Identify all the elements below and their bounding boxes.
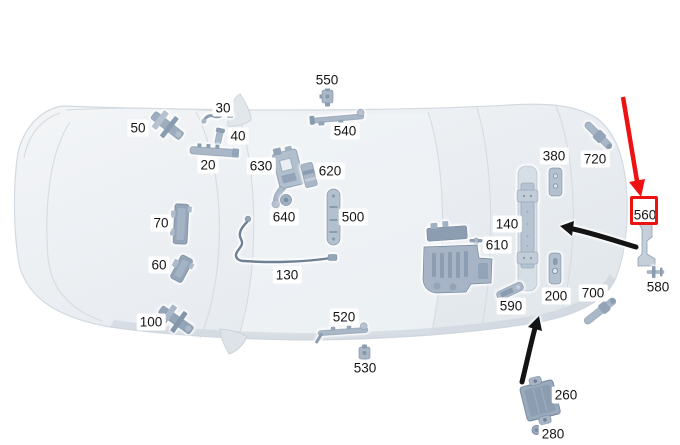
part-label-610[interactable]: 610	[483, 237, 512, 254]
part-label-700[interactable]: 700	[579, 285, 608, 302]
part-label-100[interactable]: 100	[137, 314, 166, 331]
part-580-shape	[647, 266, 664, 278]
part-label-30[interactable]: 30	[212, 100, 233, 117]
part-label-500[interactable]: 500	[339, 209, 368, 226]
part-label-530[interactable]: 530	[351, 360, 380, 377]
part-label-50[interactable]: 50	[127, 120, 148, 137]
part-label-260[interactable]: 260	[552, 387, 581, 404]
part-label-40[interactable]: 40	[227, 128, 248, 145]
part-label-620[interactable]: 620	[316, 163, 345, 180]
part-label-520[interactable]: 520	[330, 309, 359, 326]
part-label-720[interactable]: 720	[581, 151, 610, 168]
part-560-shape	[638, 224, 655, 266]
part-label-540[interactable]: 540	[331, 123, 360, 140]
part-label-590[interactable]: 590	[497, 298, 526, 315]
part-label-140[interactable]: 140	[493, 216, 522, 233]
part-label-380[interactable]: 380	[540, 148, 569, 165]
part-200-shape	[549, 253, 561, 284]
part-label-280[interactable]: 280	[539, 426, 568, 443]
part-label-580[interactable]: 580	[644, 279, 673, 296]
part-label-60[interactable]: 60	[148, 257, 169, 274]
part-label-130[interactable]: 130	[273, 267, 302, 284]
part-label-70[interactable]: 70	[150, 215, 171, 232]
part-640-shape	[281, 195, 292, 206]
part-label-200[interactable]: 200	[542, 288, 571, 305]
part-label-640[interactable]: 640	[270, 209, 299, 226]
part-380-shape	[549, 168, 562, 196]
pointer-arrow-260	[522, 316, 542, 382]
part-label-20[interactable]: 20	[197, 157, 218, 174]
parts-diagram: 50 30 40 20 550 540 630 620 640 500 70 6…	[0, 0, 680, 445]
part-550-shape	[320, 87, 334, 107]
part-label-560[interactable]: 560	[631, 207, 660, 224]
part-label-630[interactable]: 630	[247, 158, 276, 175]
part-label-550[interactable]: 550	[313, 72, 342, 89]
